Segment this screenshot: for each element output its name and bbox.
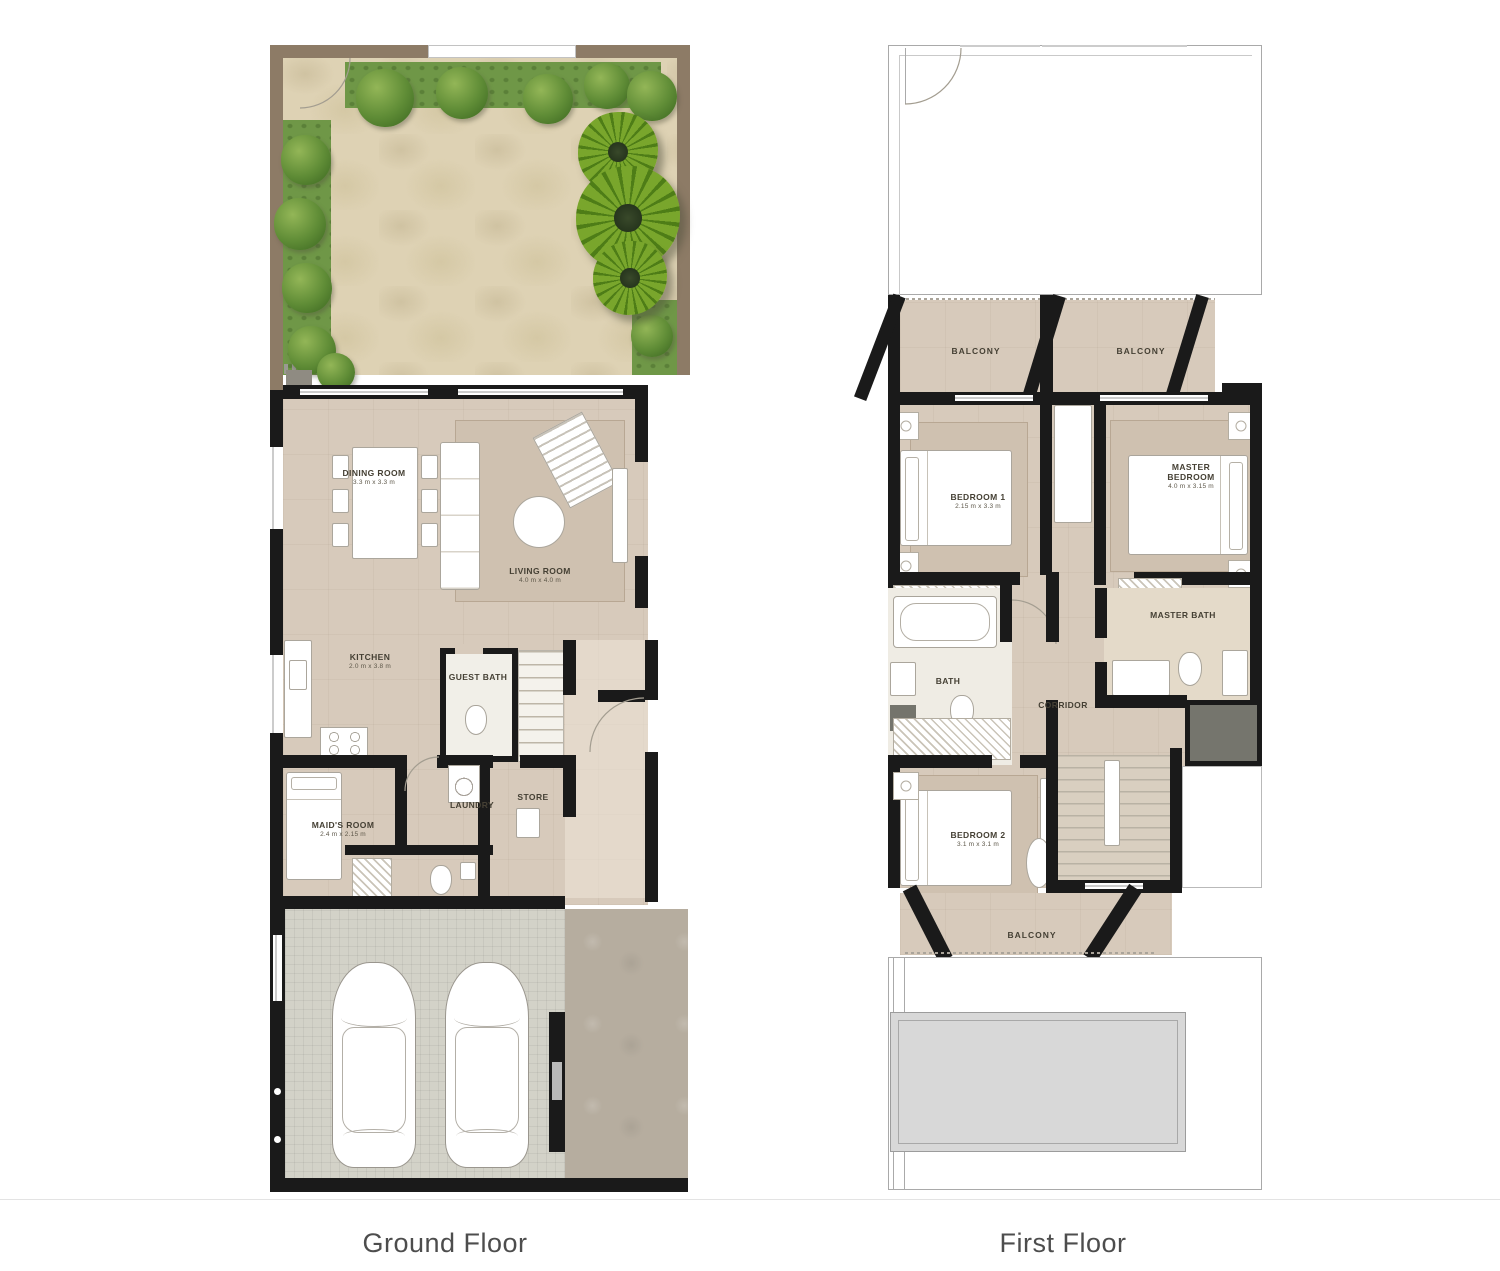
closet [893,718,1011,760]
dining-room-label: DINING ROOM 3.3 m x 3.3 m [338,468,410,487]
bath-label: BATH [918,676,978,686]
ground-floor-caption: Ground Floor [315,1228,575,1259]
room-name: STORE [517,792,548,802]
void [1182,766,1262,888]
room-name: DINING ROOM [343,468,406,478]
floorplan-image: DINING ROOM 3.3 m x 3.3 m LIVING ROOM 4.… [0,0,1500,1271]
room-dims: 2.0 m x 3.8 m [328,663,412,671]
balcony-railing [1052,298,1215,300]
wall [888,755,992,768]
nightstand [893,772,919,800]
balcony-railing [905,952,1157,954]
wall [1095,588,1107,638]
divider-line [0,1199,1500,1200]
room-name: CORRIDOR [1038,700,1087,710]
store-label: STORE [505,792,561,802]
balcony-label: BALCONY [1092,346,1190,356]
room-name: GUEST BATH [449,672,508,682]
living-room-label: LIVING ROOM 4.0 m x 4.0 m [480,566,600,585]
balcony-label: BALCONY [984,930,1080,940]
first-floor-plan: BALCONY BALCONY BEDROOM 1 2.15 m x 3.3 m… [0,0,1500,1271]
wardrobe [1054,405,1092,523]
toilet [1178,652,1202,686]
roof-slab [1185,700,1262,766]
bedroom2-label: BEDROOM 2 3.1 m x 3.1 m [928,830,1028,849]
master-bath-label: MASTER BATH [1144,610,1222,620]
first-floor-caption: First Floor [933,1228,1193,1259]
room-dims: 3.1 m x 3.1 m [928,841,1028,849]
room-name: BALCONY [951,346,1000,356]
room-name: KITCHEN [350,652,391,662]
window [955,395,1033,401]
wall [1040,405,1052,575]
room-dims: 2.4 m x 2.15 m [292,831,394,839]
shower [1222,650,1248,696]
room-name: MAID'S ROOM [312,820,375,830]
room-dims: 2.15 m x 3.3 m [928,503,1028,511]
room-name: MASTER BEDROOM [1167,462,1214,482]
room-name: LIVING ROOM [509,566,571,576]
wall [1170,748,1182,890]
window [1042,43,1187,49]
room-name: LAUNDRY [450,800,494,810]
balcony-railing [900,298,1040,300]
wall [1046,700,1058,890]
room-dims: 4.0 m x 3.15 m [1152,483,1230,491]
door-arc [905,48,961,104]
wall [1046,572,1059,642]
room-dims: 3.3 m x 3.3 m [338,479,410,487]
wall [1020,755,1046,768]
balcony-label: BALCONY [930,346,1022,356]
room-name: BALCONY [1007,930,1056,940]
outline-line [899,55,900,295]
room-name: BATH [936,676,961,686]
room-dims: 4.0 m x 4.0 m [480,577,600,585]
wall [1094,572,1106,585]
window [960,43,1040,49]
room-name: BALCONY [1116,346,1165,356]
window [1100,395,1208,401]
wall [1250,392,1262,708]
slab-inner-line [898,1020,1178,1144]
vanity-counter [1112,660,1170,696]
corridor-label: CORRIDOR [1013,700,1113,710]
wall [1000,572,1012,642]
bathtub [893,596,997,648]
maids-room-label: MAID'S ROOM 2.4 m x 2.15 m [292,820,394,839]
room-name: BEDROOM 2 [950,830,1005,840]
master-bedroom-label: MASTER BEDROOM 4.0 m x 3.15 m [1152,462,1230,491]
laundry-label: LAUNDRY [428,800,516,810]
room-name: BEDROOM 1 [950,492,1005,502]
bedroom1-label: BEDROOM 1 2.15 m x 3.3 m [928,492,1028,511]
stair-rail [1104,760,1120,846]
kitchen-label: KITCHEN 2.0 m x 3.8 m [328,652,412,671]
sink [890,662,916,696]
wall [1094,405,1106,575]
room-name: MASTER BATH [1150,610,1216,620]
guest-bath-label: GUEST BATH [447,672,509,682]
